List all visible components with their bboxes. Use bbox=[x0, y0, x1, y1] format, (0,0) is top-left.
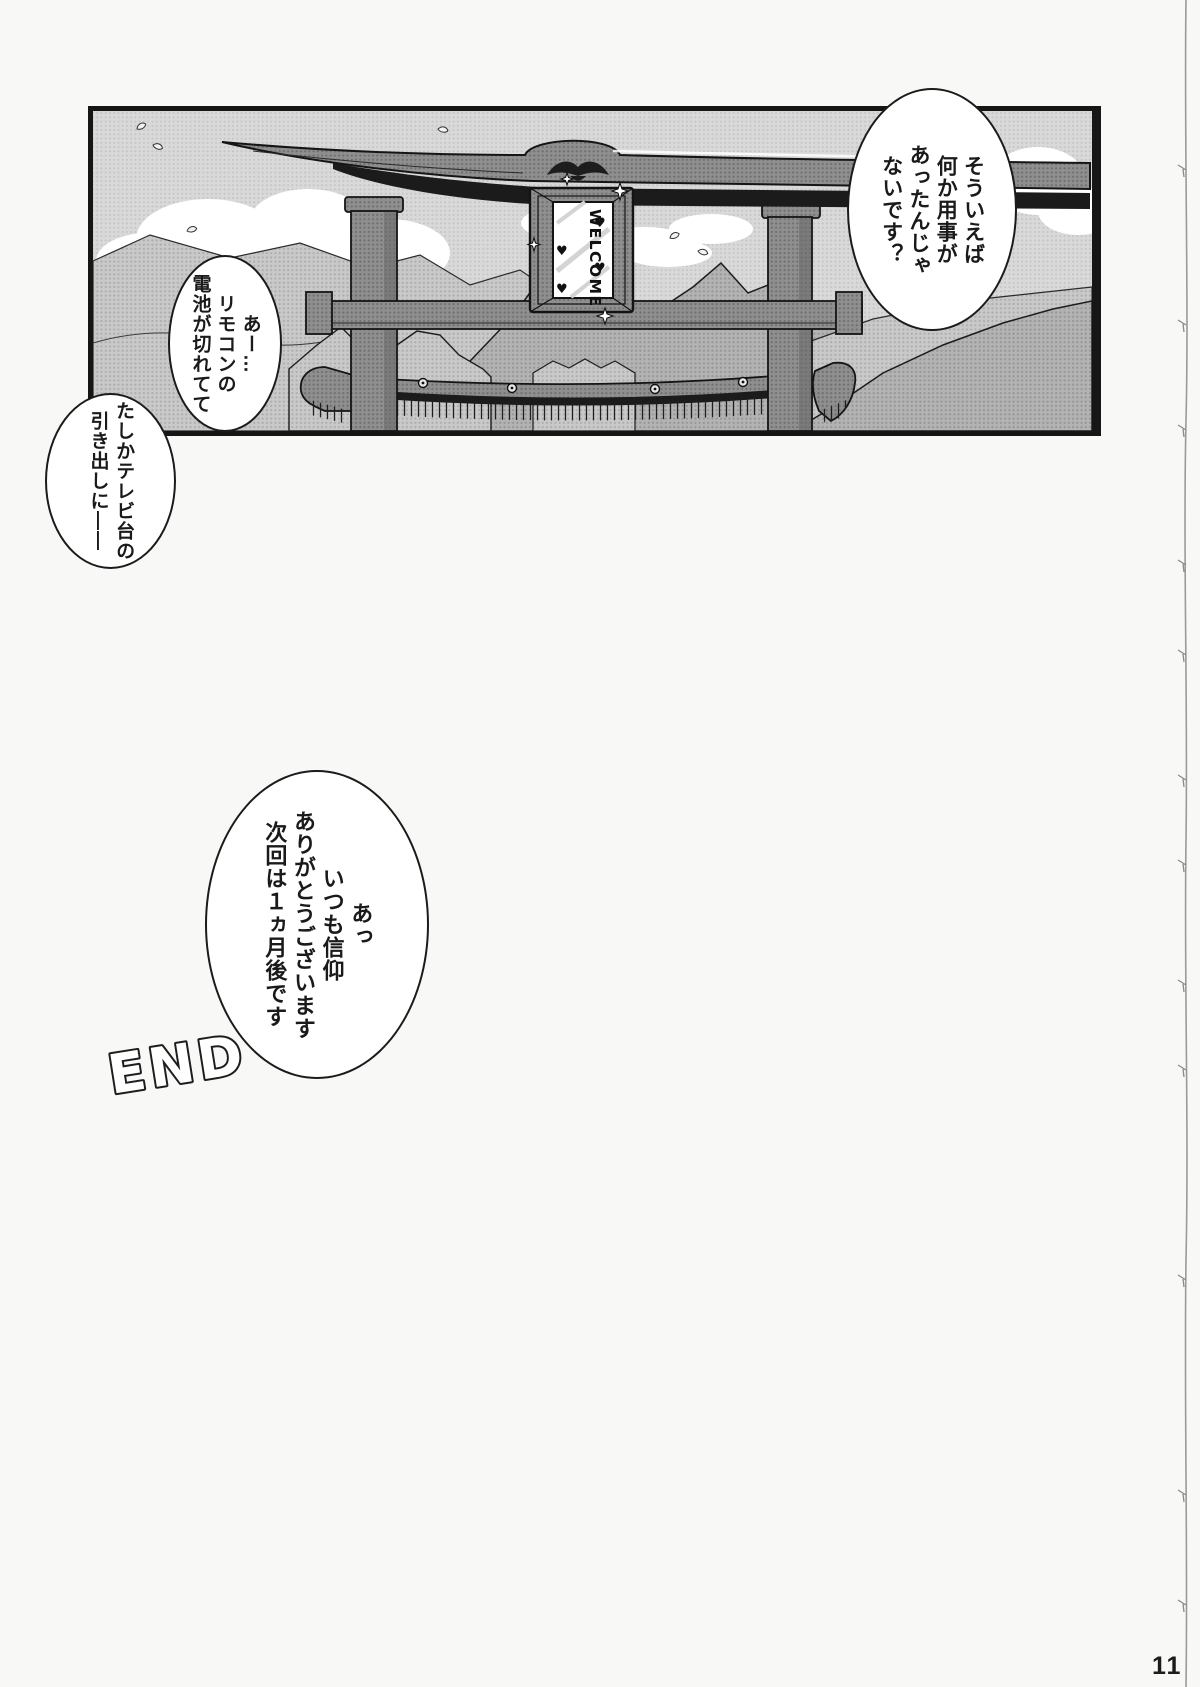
speech-bubble-1: そういえば 何か用事が あったんじゃ ないです？ bbox=[847, 88, 1017, 331]
speech-bubble-3: たしかテレビ台の 引き出しに―― bbox=[45, 393, 176, 569]
speech-bubble-2: あー… リモコンの 電池が切れてて bbox=[168, 255, 282, 432]
svg-text:♥: ♥ bbox=[594, 216, 606, 231]
manga-page: WELCOME ♥ ♥ ♥ ♥ bbox=[0, 0, 1200, 1687]
speech-bubble-4: あっ いつも信仰 ありがとうございます 次回は１ヵ月後です bbox=[205, 770, 429, 1079]
svg-text:♥: ♥ bbox=[594, 261, 606, 276]
speech-bubble-1-text: そういえば 何か用事が あったんじゃ ないです？ bbox=[877, 144, 986, 276]
welcome-sign: WELCOME ♥ ♥ ♥ ♥ bbox=[528, 173, 633, 324]
speech-bubble-2-text: あー… リモコンの 電池が切れてて bbox=[187, 274, 262, 414]
svg-text:♥: ♥ bbox=[556, 244, 568, 259]
svg-text:♥: ♥ bbox=[556, 282, 568, 297]
end-label: END bbox=[104, 1023, 251, 1107]
speech-bubble-3-text: たしかテレビ台の 引き出しに―― bbox=[85, 401, 136, 561]
page-edge-line bbox=[1166, 0, 1200, 1687]
speech-bubble-4-text: あっ いつも信仰 ありがとうございます 次回は１ヵ月後です bbox=[260, 810, 374, 1040]
